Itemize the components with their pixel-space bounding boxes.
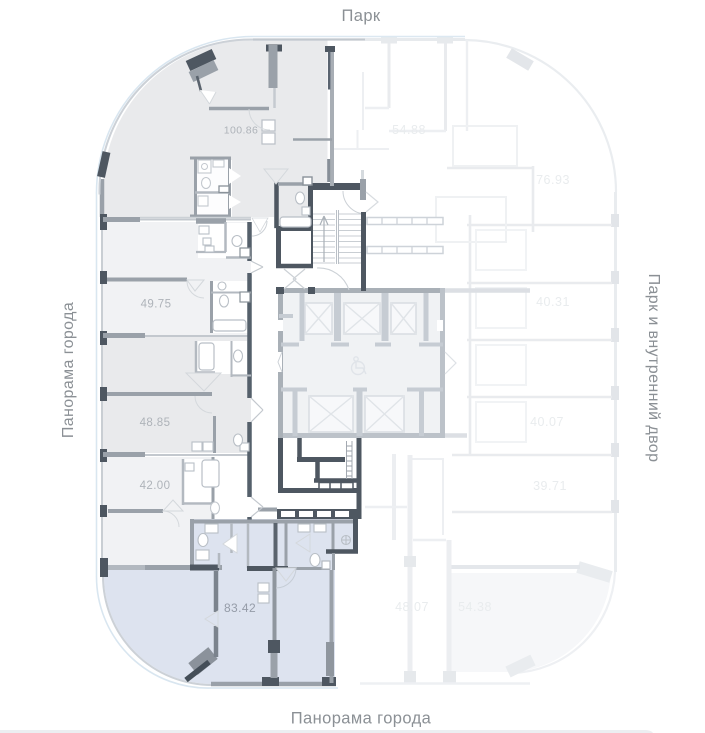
- svg-text:39.71: 39.71: [533, 479, 567, 493]
- svg-text:Панорама города: Панорама города: [60, 302, 77, 438]
- svg-text:Панорама города: Панорама города: [291, 710, 432, 728]
- svg-text:48.07: 48.07: [395, 600, 429, 614]
- svg-text:48.85: 48.85: [140, 417, 171, 429]
- svg-text:Парк и внутренний двор: Парк и внутренний двор: [645, 274, 662, 463]
- svg-text:42.00: 42.00: [140, 480, 171, 492]
- svg-text:83.42: 83.42: [224, 601, 256, 615]
- svg-text:Парк: Парк: [341, 7, 380, 25]
- svg-text:76.93: 76.93: [536, 173, 570, 187]
- svg-text:54.38: 54.38: [458, 600, 492, 614]
- svg-text:54.88: 54.88: [392, 123, 426, 137]
- svg-text:49.75: 49.75: [141, 299, 172, 311]
- svg-text:40.07: 40.07: [530, 415, 564, 429]
- svg-text:40.31: 40.31: [536, 295, 570, 309]
- svg-text:100.86: 100.86: [224, 125, 259, 137]
